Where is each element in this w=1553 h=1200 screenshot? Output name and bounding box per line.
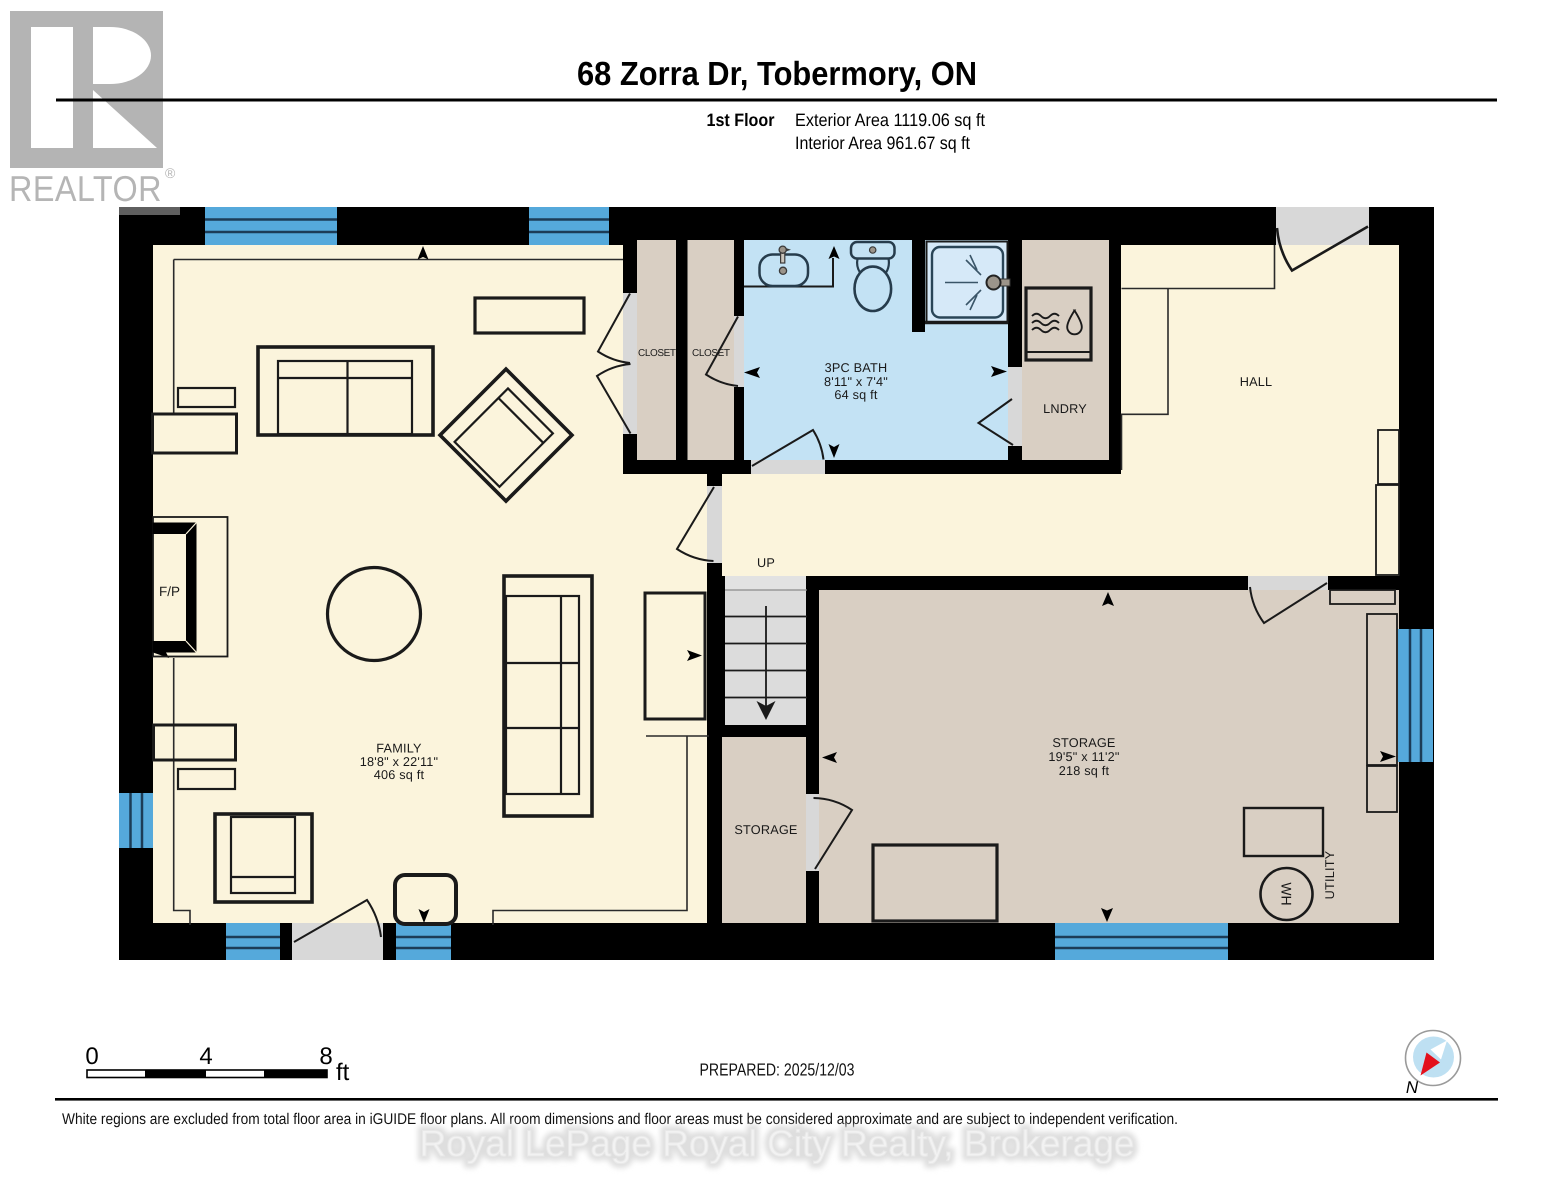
svg-text:WH: WH <box>1279 882 1295 905</box>
svg-text:LNDRY: LNDRY <box>1043 402 1087 416</box>
svg-text:1st Floor: 1st Floor <box>707 110 775 130</box>
svg-text:64 sq ft: 64 sq ft <box>834 388 877 402</box>
svg-text:3PC BATH: 3PC BATH <box>825 361 888 375</box>
svg-text:F/P: F/P <box>159 584 180 599</box>
svg-text:218 sq ft: 218 sq ft <box>1059 764 1110 778</box>
svg-text:18'8" x 22'11": 18'8" x 22'11" <box>360 755 439 769</box>
svg-text:Exterior Area 1119.06 sq ft: Exterior Area 1119.06 sq ft <box>795 110 985 130</box>
svg-text:0: 0 <box>85 1043 98 1070</box>
svg-text:PREPARED: 2025/12/03: PREPARED: 2025/12/03 <box>700 1060 855 1080</box>
svg-text:68 Zorra Dr, Tobermory, ON: 68 Zorra Dr, Tobermory, ON <box>577 56 977 93</box>
svg-text:ft: ft <box>336 1059 350 1086</box>
svg-text:STORAGE: STORAGE <box>1052 736 1115 750</box>
svg-text:FAMILY: FAMILY <box>376 742 422 756</box>
svg-text:N: N <box>1406 1078 1419 1097</box>
svg-text:®: ® <box>165 165 176 181</box>
svg-text:Royal LePage Royal City Realty: Royal LePage Royal City Realty, Brokerag… <box>420 1123 1135 1164</box>
svg-text:8'11" x 7'4": 8'11" x 7'4" <box>824 375 888 389</box>
svg-text:CLOSET: CLOSET <box>638 348 676 359</box>
svg-text:UTILITY: UTILITY <box>1323 850 1337 899</box>
svg-text:4: 4 <box>199 1043 212 1070</box>
svg-text:Interior Area 961.67 sq ft: Interior Area 961.67 sq ft <box>795 133 970 153</box>
svg-text:STORAGE: STORAGE <box>734 823 797 837</box>
svg-text:UP: UP <box>757 556 775 570</box>
svg-text:CLOSET: CLOSET <box>692 348 730 359</box>
svg-text:REALTOR: REALTOR <box>9 168 162 209</box>
svg-text:HALL: HALL <box>1240 375 1273 389</box>
svg-text:8: 8 <box>319 1043 332 1070</box>
svg-text:19'5" x 11'2": 19'5" x 11'2" <box>1048 750 1119 764</box>
svg-text:406 sq ft: 406 sq ft <box>374 768 425 782</box>
